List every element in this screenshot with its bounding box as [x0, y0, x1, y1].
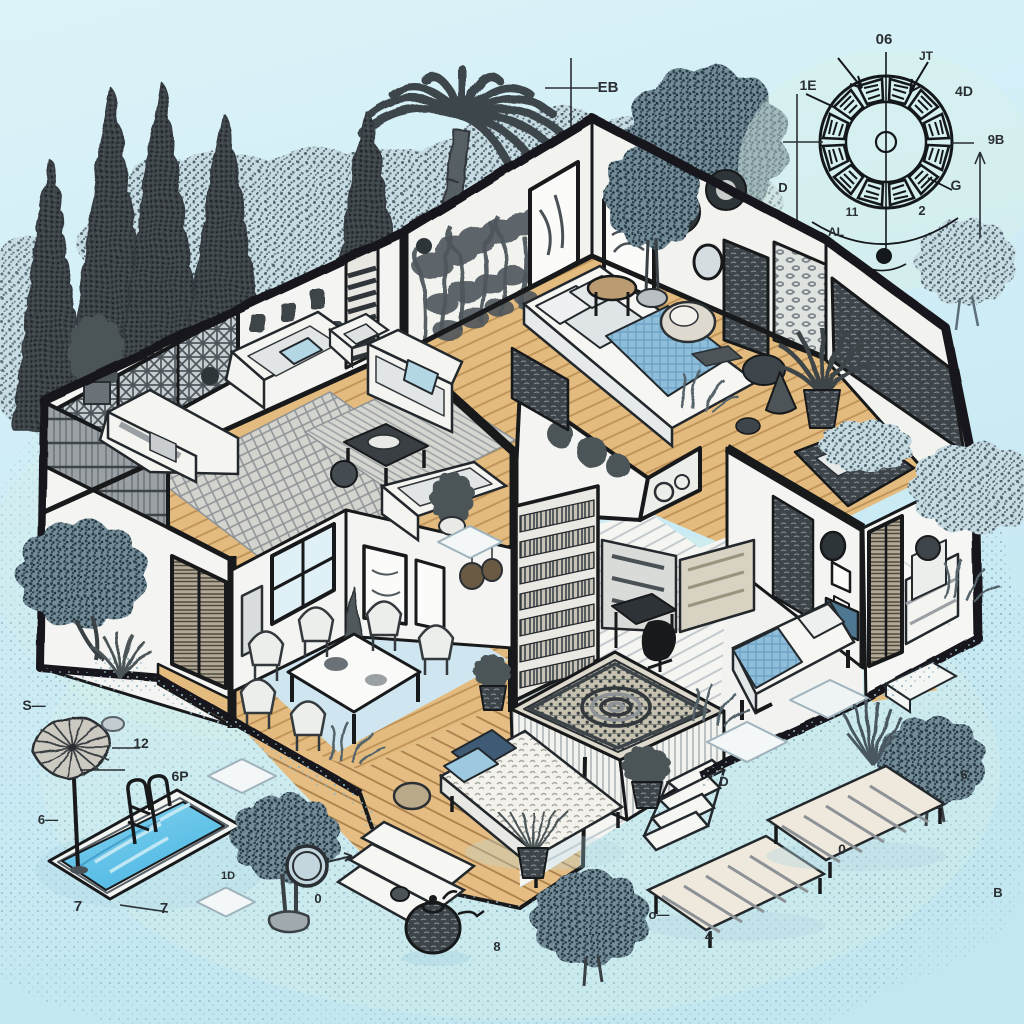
- svg-text:6—: 6—: [38, 812, 58, 827]
- svg-text:B: B: [993, 885, 1002, 900]
- svg-text:06: 06: [876, 31, 893, 48]
- svg-text:1E: 1E: [799, 77, 816, 93]
- svg-text:G: G: [951, 177, 962, 193]
- svg-text:S—: S—: [22, 697, 45, 713]
- svg-text:0: 0: [838, 841, 846, 857]
- svg-text:D: D: [778, 180, 787, 195]
- svg-text:o—: o—: [649, 907, 670, 922]
- svg-text:7: 7: [74, 898, 82, 915]
- svg-text:7: 7: [160, 900, 168, 917]
- svg-text:4D: 4D: [955, 83, 973, 99]
- svg-text:4: 4: [705, 928, 714, 945]
- svg-text:0: 0: [314, 891, 321, 906]
- svg-text:AL: AL: [828, 225, 844, 239]
- svg-text:6: 6: [960, 767, 967, 782]
- svg-text:11: 11: [846, 205, 859, 219]
- svg-text:2: 2: [918, 203, 925, 218]
- svg-text:D: D: [719, 774, 728, 789]
- svg-text:9B: 9B: [988, 132, 1005, 147]
- svg-text:8: 8: [493, 939, 500, 954]
- svg-text:JT: JT: [919, 49, 934, 63]
- svg-text:1D: 1D: [221, 870, 235, 882]
- svg-text:EB: EB: [598, 79, 619, 96]
- svg-text:6P: 6P: [171, 768, 188, 784]
